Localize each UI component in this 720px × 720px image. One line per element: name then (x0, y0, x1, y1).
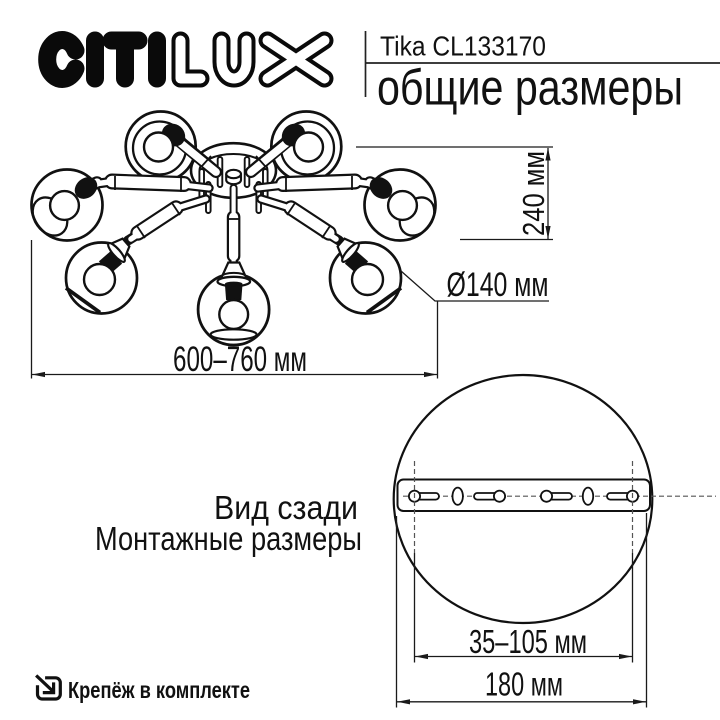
svg-text:Ø140 мм: Ø140 мм (447, 266, 549, 304)
svg-text:Крепёж в комплекте: Крепёж в комплекте (68, 677, 250, 703)
svg-text:600–760 мм: 600–760 мм (173, 340, 307, 379)
svg-text:Монтажные размеры: Монтажные размеры (95, 520, 362, 557)
svg-text:240 мм: 240 мм (516, 151, 551, 236)
svg-text:общие размеры: общие размеры (377, 60, 683, 116)
svg-text:35–105 мм: 35–105 мм (469, 623, 587, 660)
svg-text:180 мм: 180 мм (485, 666, 563, 703)
svg-text:Tika CL133170: Tika CL133170 (380, 31, 546, 62)
